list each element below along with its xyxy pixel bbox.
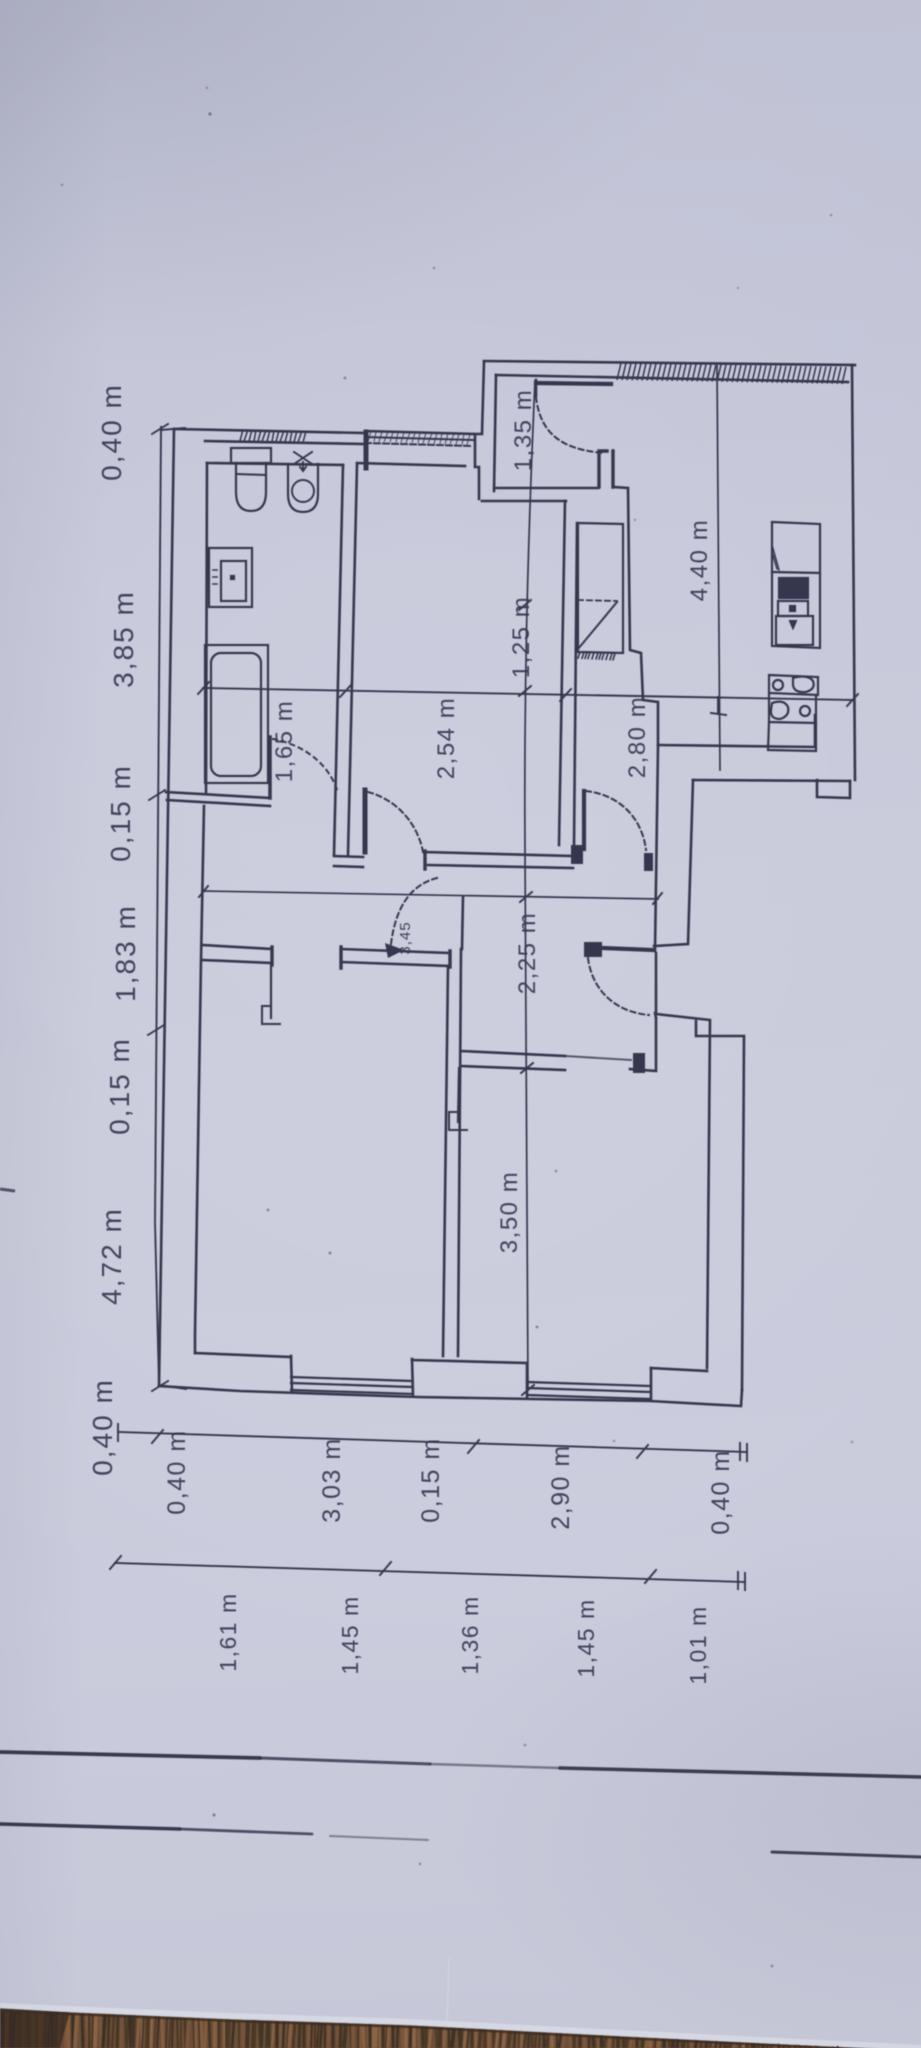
svg-text:2,90 m: 2,90 m: [547, 1444, 575, 1529]
svg-text:3,85 m: 3,85 m: [108, 590, 139, 688]
svg-text:1,45 m: 1,45 m: [573, 1598, 599, 1677]
svg-text:0,15 m: 0,15 m: [105, 764, 136, 862]
svg-text:1,36 m: 1,36 m: [457, 1595, 483, 1674]
svg-text:0,40 m: 0,40 m: [707, 1449, 735, 1534]
svg-text:1,65 m: 1,65 m: [271, 700, 298, 782]
svg-text:3,03 m: 3,03 m: [318, 1437, 346, 1522]
svg-text:0,40 m: 0,40 m: [96, 383, 127, 481]
svg-text:0,40 m: 0,40 m: [87, 1378, 118, 1476]
svg-text:3,45: 3,45: [397, 921, 414, 954]
svg-text:1,25 m: 1,25 m: [508, 596, 535, 678]
svg-text:1,45 m: 1,45 m: [337, 1595, 363, 1674]
svg-text:1,61 m: 1,61 m: [215, 1592, 241, 1671]
svg-text:0,15 m: 0,15 m: [417, 1437, 445, 1522]
svg-text:2,25 m: 2,25 m: [514, 912, 541, 994]
svg-text:2,80 m: 2,80 m: [624, 696, 651, 778]
svg-text:4,72 m: 4,72 m: [96, 1207, 127, 1305]
svg-text:4,40 m: 4,40 m: [686, 519, 713, 601]
svg-text:1,83 m: 1,83 m: [110, 904, 141, 1002]
svg-text:0,15 m: 0,15 m: [104, 1037, 135, 1135]
svg-text:2,54 m: 2,54 m: [433, 697, 460, 779]
svg-text:0,40 m: 0,40 m: [163, 1429, 191, 1514]
svg-text:1,01 m: 1,01 m: [685, 1605, 711, 1684]
svg-text:3,50 m: 3,50 m: [496, 1171, 523, 1253]
svg-text:1,35 m: 1,35 m: [510, 389, 537, 471]
